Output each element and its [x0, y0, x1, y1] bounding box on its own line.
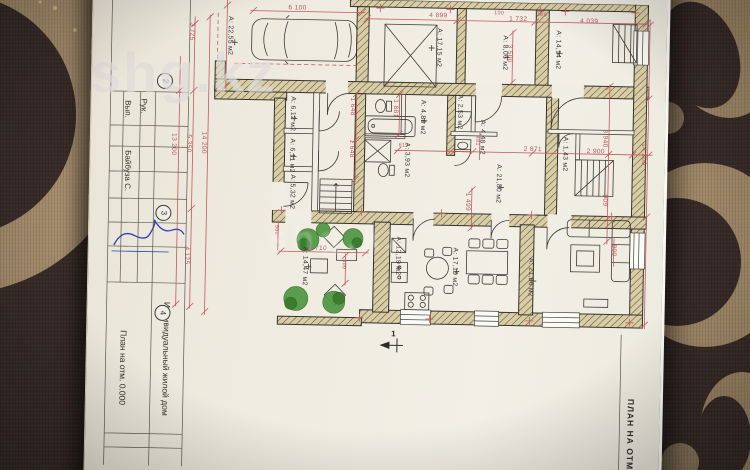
- dim-1648-a: 1 648: [348, 97, 355, 115]
- dim-481: 481: [474, 136, 479, 146]
- room-label-612: А: 6,12 м2: [288, 96, 295, 131]
- dim-3500: 3 500: [505, 44, 512, 62]
- room-label-532: А: 5,32 м2: [288, 174, 295, 209]
- room-label-living: А: 21,86 м2: [526, 258, 534, 297]
- toilet: [378, 164, 394, 177]
- section-number: 1: [391, 329, 396, 338]
- dining-table: [466, 239, 508, 285]
- dim-3725: 3 725: [188, 22, 195, 40]
- terrace-table: [310, 259, 327, 273]
- photo-scene: Рук. Вып. Байбуза С. Индивидуальный жило…: [0, 0, 750, 470]
- dim-2900: 2 900: [587, 149, 605, 156]
- coffee-table: [570, 245, 600, 273]
- room-label-253: А: 2,53 м2: [455, 94, 462, 129]
- kitchen-table: [424, 247, 454, 296]
- edge-title: ПЛАН НА ОТМ.: [625, 399, 636, 470]
- dim-100-b: 100: [537, 13, 547, 18]
- room-label-143: А: 1,43 м2: [560, 137, 567, 172]
- dim-1881: 1 881: [391, 99, 398, 117]
- roof-hatch: [384, 24, 437, 87]
- dim-4125: 4 125: [182, 246, 189, 264]
- dim-1732: 1 732: [509, 16, 527, 23]
- titleblock-executor: Байбуза С.: [123, 150, 132, 191]
- dim-1648-b: 1 648: [348, 139, 355, 157]
- dim-400: 400: [340, 259, 345, 269]
- dim-13200: 13 200: [170, 133, 177, 155]
- dim-1499: 1 499: [464, 193, 471, 211]
- dim-100-a: 100: [494, 11, 504, 16]
- dim-14200-r: 14 200: [639, 143, 646, 165]
- toilet: [375, 99, 391, 112]
- dim-900: 900: [610, 244, 617, 256]
- section-mark: [381, 338, 403, 352]
- dim-5350: 5 350: [185, 134, 192, 152]
- dim-4039: 4 039: [580, 19, 598, 26]
- room-label-dining: А: 17,19 м2: [450, 247, 458, 286]
- dim-6100: 6 100: [288, 5, 306, 12]
- walls: [210, 0, 650, 331]
- shower-tray: [364, 140, 390, 162]
- stairs-small: [319, 179, 352, 214]
- room-label-611: А: 6,11 м2: [287, 138, 294, 173]
- dim-3940: 3 940: [601, 129, 608, 147]
- dim-2871: 2 871: [524, 147, 542, 154]
- watermark-shgkz: shg.kz: [90, 40, 276, 105]
- room-label-488: А: 4,88 м2: [418, 100, 425, 135]
- tv-stand: [584, 299, 608, 307]
- watermark-faint: shg.kz: [268, 220, 410, 259]
- room-label-1715: А: 17,15 м2: [434, 28, 442, 67]
- room-label-1414: А: 14,14 м2: [553, 30, 561, 69]
- dim-619: 619: [399, 143, 409, 148]
- sheet-title: План на отм. 0.000: [118, 330, 128, 405]
- room-label-hall: А: 21,80 м2: [494, 164, 502, 203]
- dim-909: 909: [601, 194, 608, 206]
- dim-14200-l: 14 200: [200, 132, 207, 154]
- dim-4899: 4 899: [429, 13, 447, 20]
